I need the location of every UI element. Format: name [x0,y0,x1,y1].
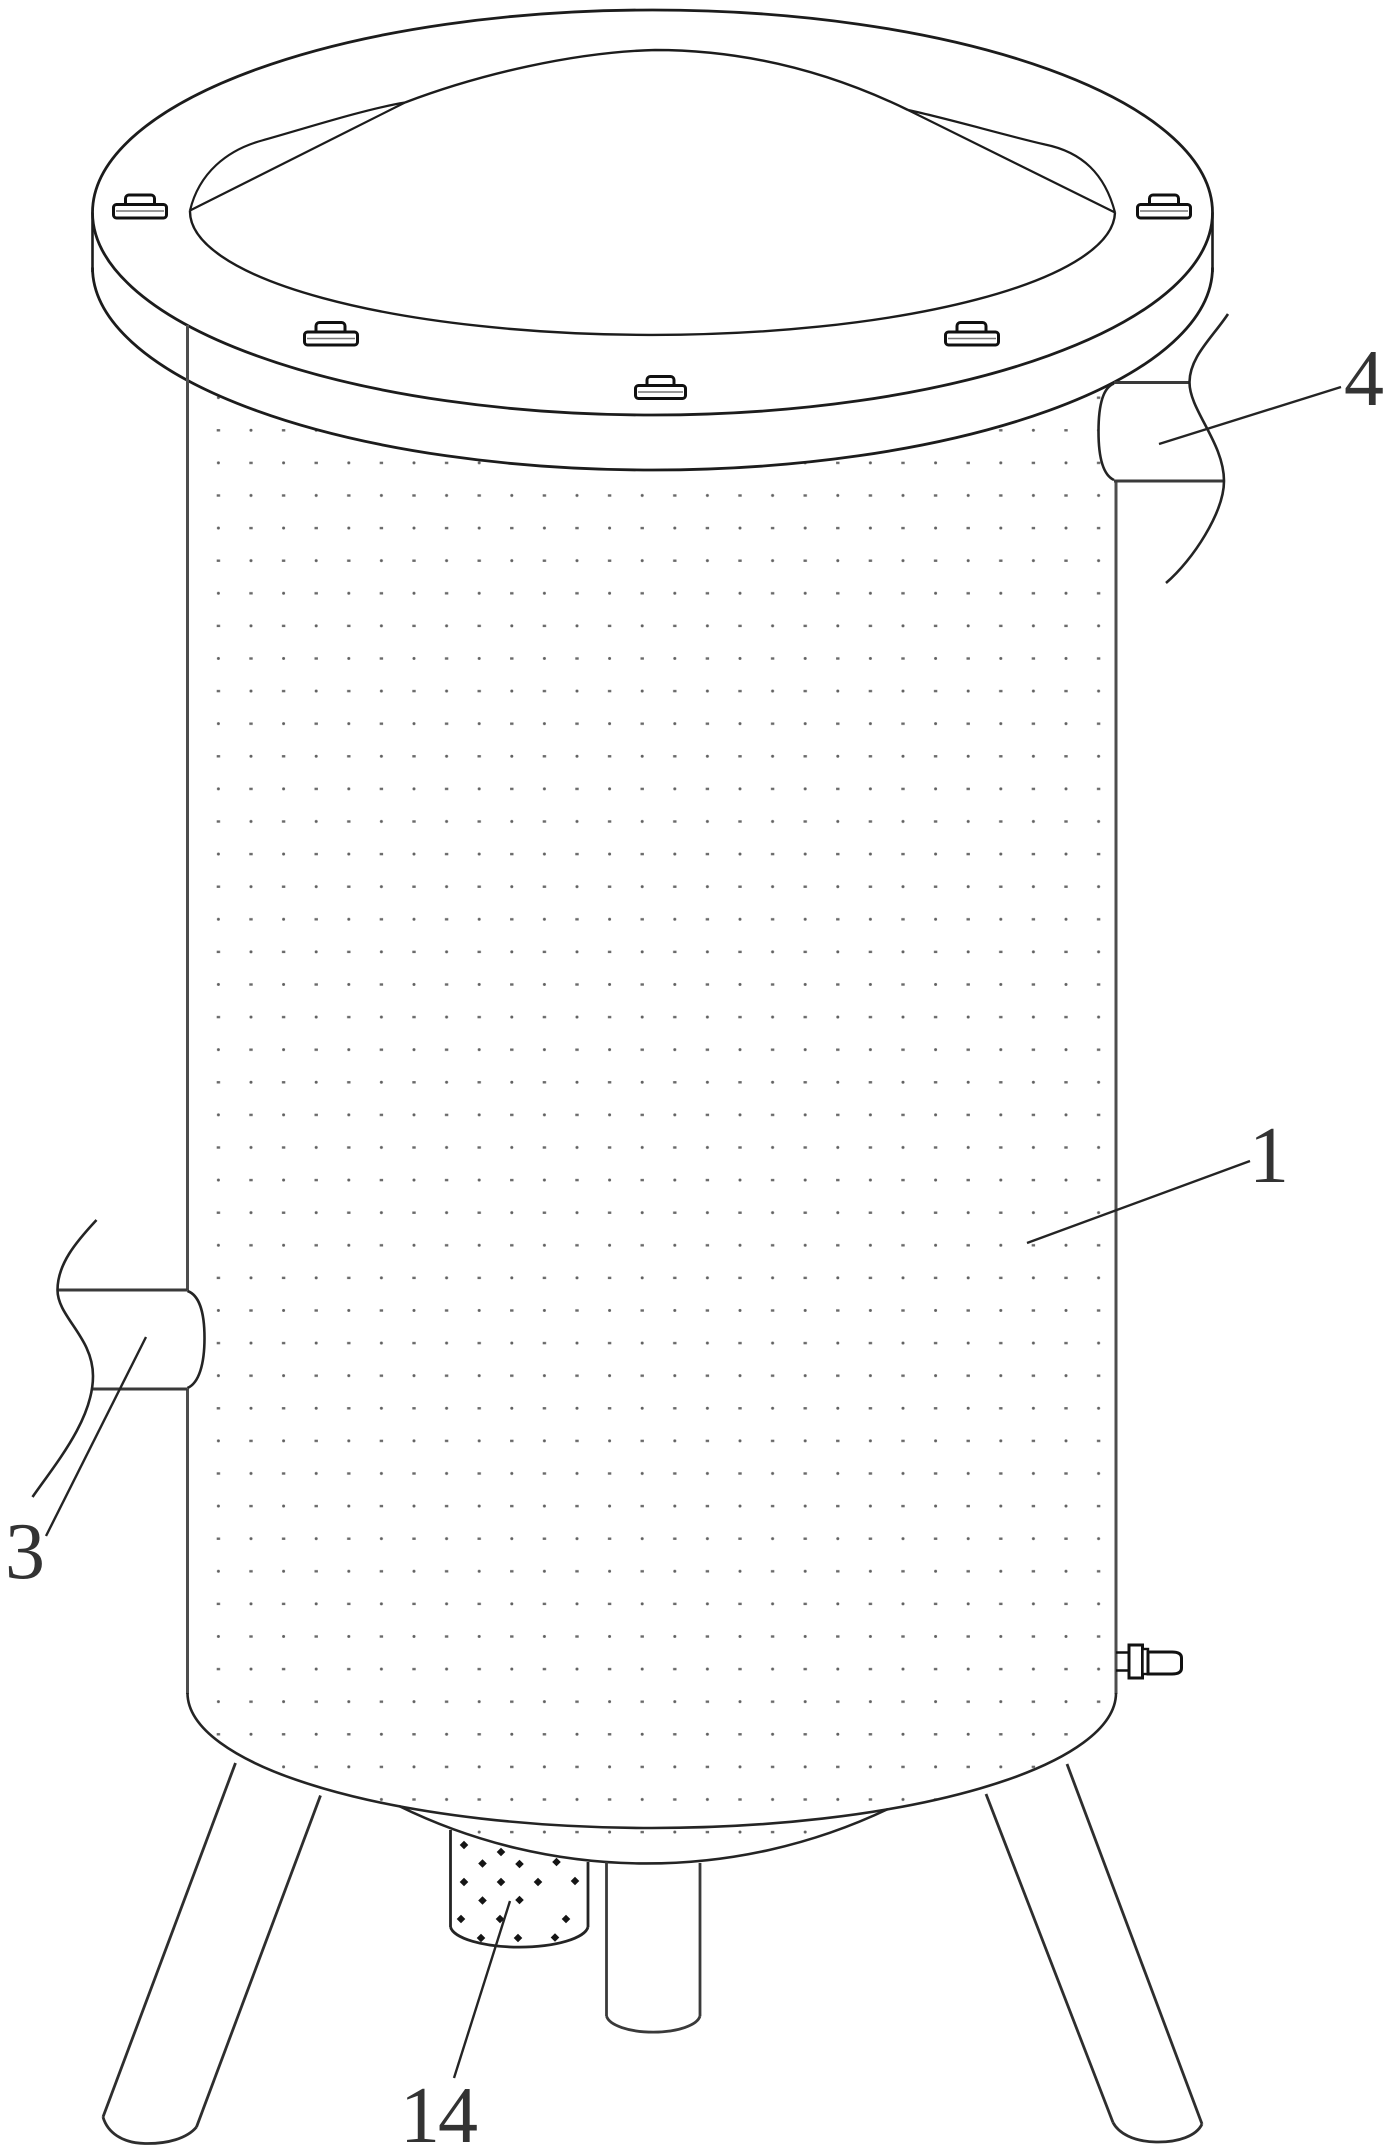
svg-text:1: 1 [400,2072,440,2156]
svg-text:1: 1 [1249,1112,1289,1200]
svg-text:3: 3 [5,1508,45,1596]
svg-text:4: 4 [1344,335,1384,423]
svg-text:4: 4 [438,2072,478,2156]
